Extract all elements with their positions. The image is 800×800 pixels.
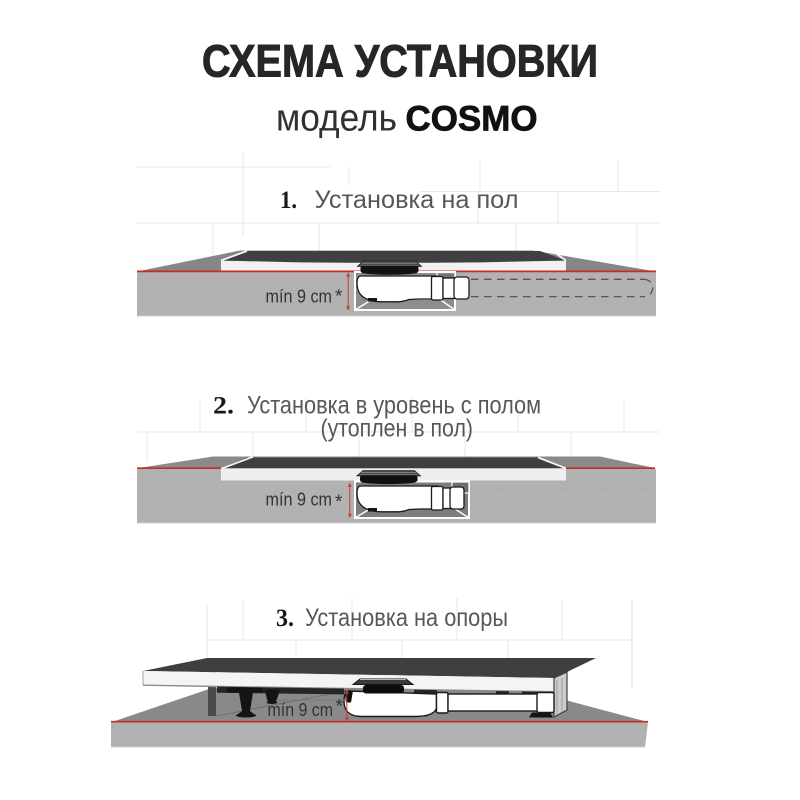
svg-text:COSMO: COSMO bbox=[406, 100, 538, 139]
svg-text:mín 9 cm: mín 9 cm bbox=[268, 700, 334, 720]
svg-text:*: * bbox=[336, 697, 344, 718]
svg-text:2.: 2. bbox=[213, 393, 234, 420]
svg-text:модель: модель bbox=[276, 98, 397, 140]
svg-text:Установка на пол: Установка на пол bbox=[315, 186, 519, 214]
svg-text:СХЕМА УСТАНОВКИ: СХЕМА УСТАНОВКИ bbox=[202, 36, 598, 87]
svg-text:3.: 3. bbox=[276, 605, 294, 632]
svg-text:(утоплен в пол): (утоплен в пол) bbox=[321, 415, 474, 443]
svg-text:Установка на опоры: Установка на опоры bbox=[305, 604, 508, 632]
svg-text:mín 9 cm: mín 9 cm bbox=[266, 287, 333, 307]
svg-text:*: * bbox=[335, 492, 343, 513]
svg-text:*: * bbox=[335, 287, 343, 308]
svg-text:1.: 1. bbox=[280, 187, 297, 214]
svg-text:mín 9 cm: mín 9 cm bbox=[266, 490, 333, 510]
